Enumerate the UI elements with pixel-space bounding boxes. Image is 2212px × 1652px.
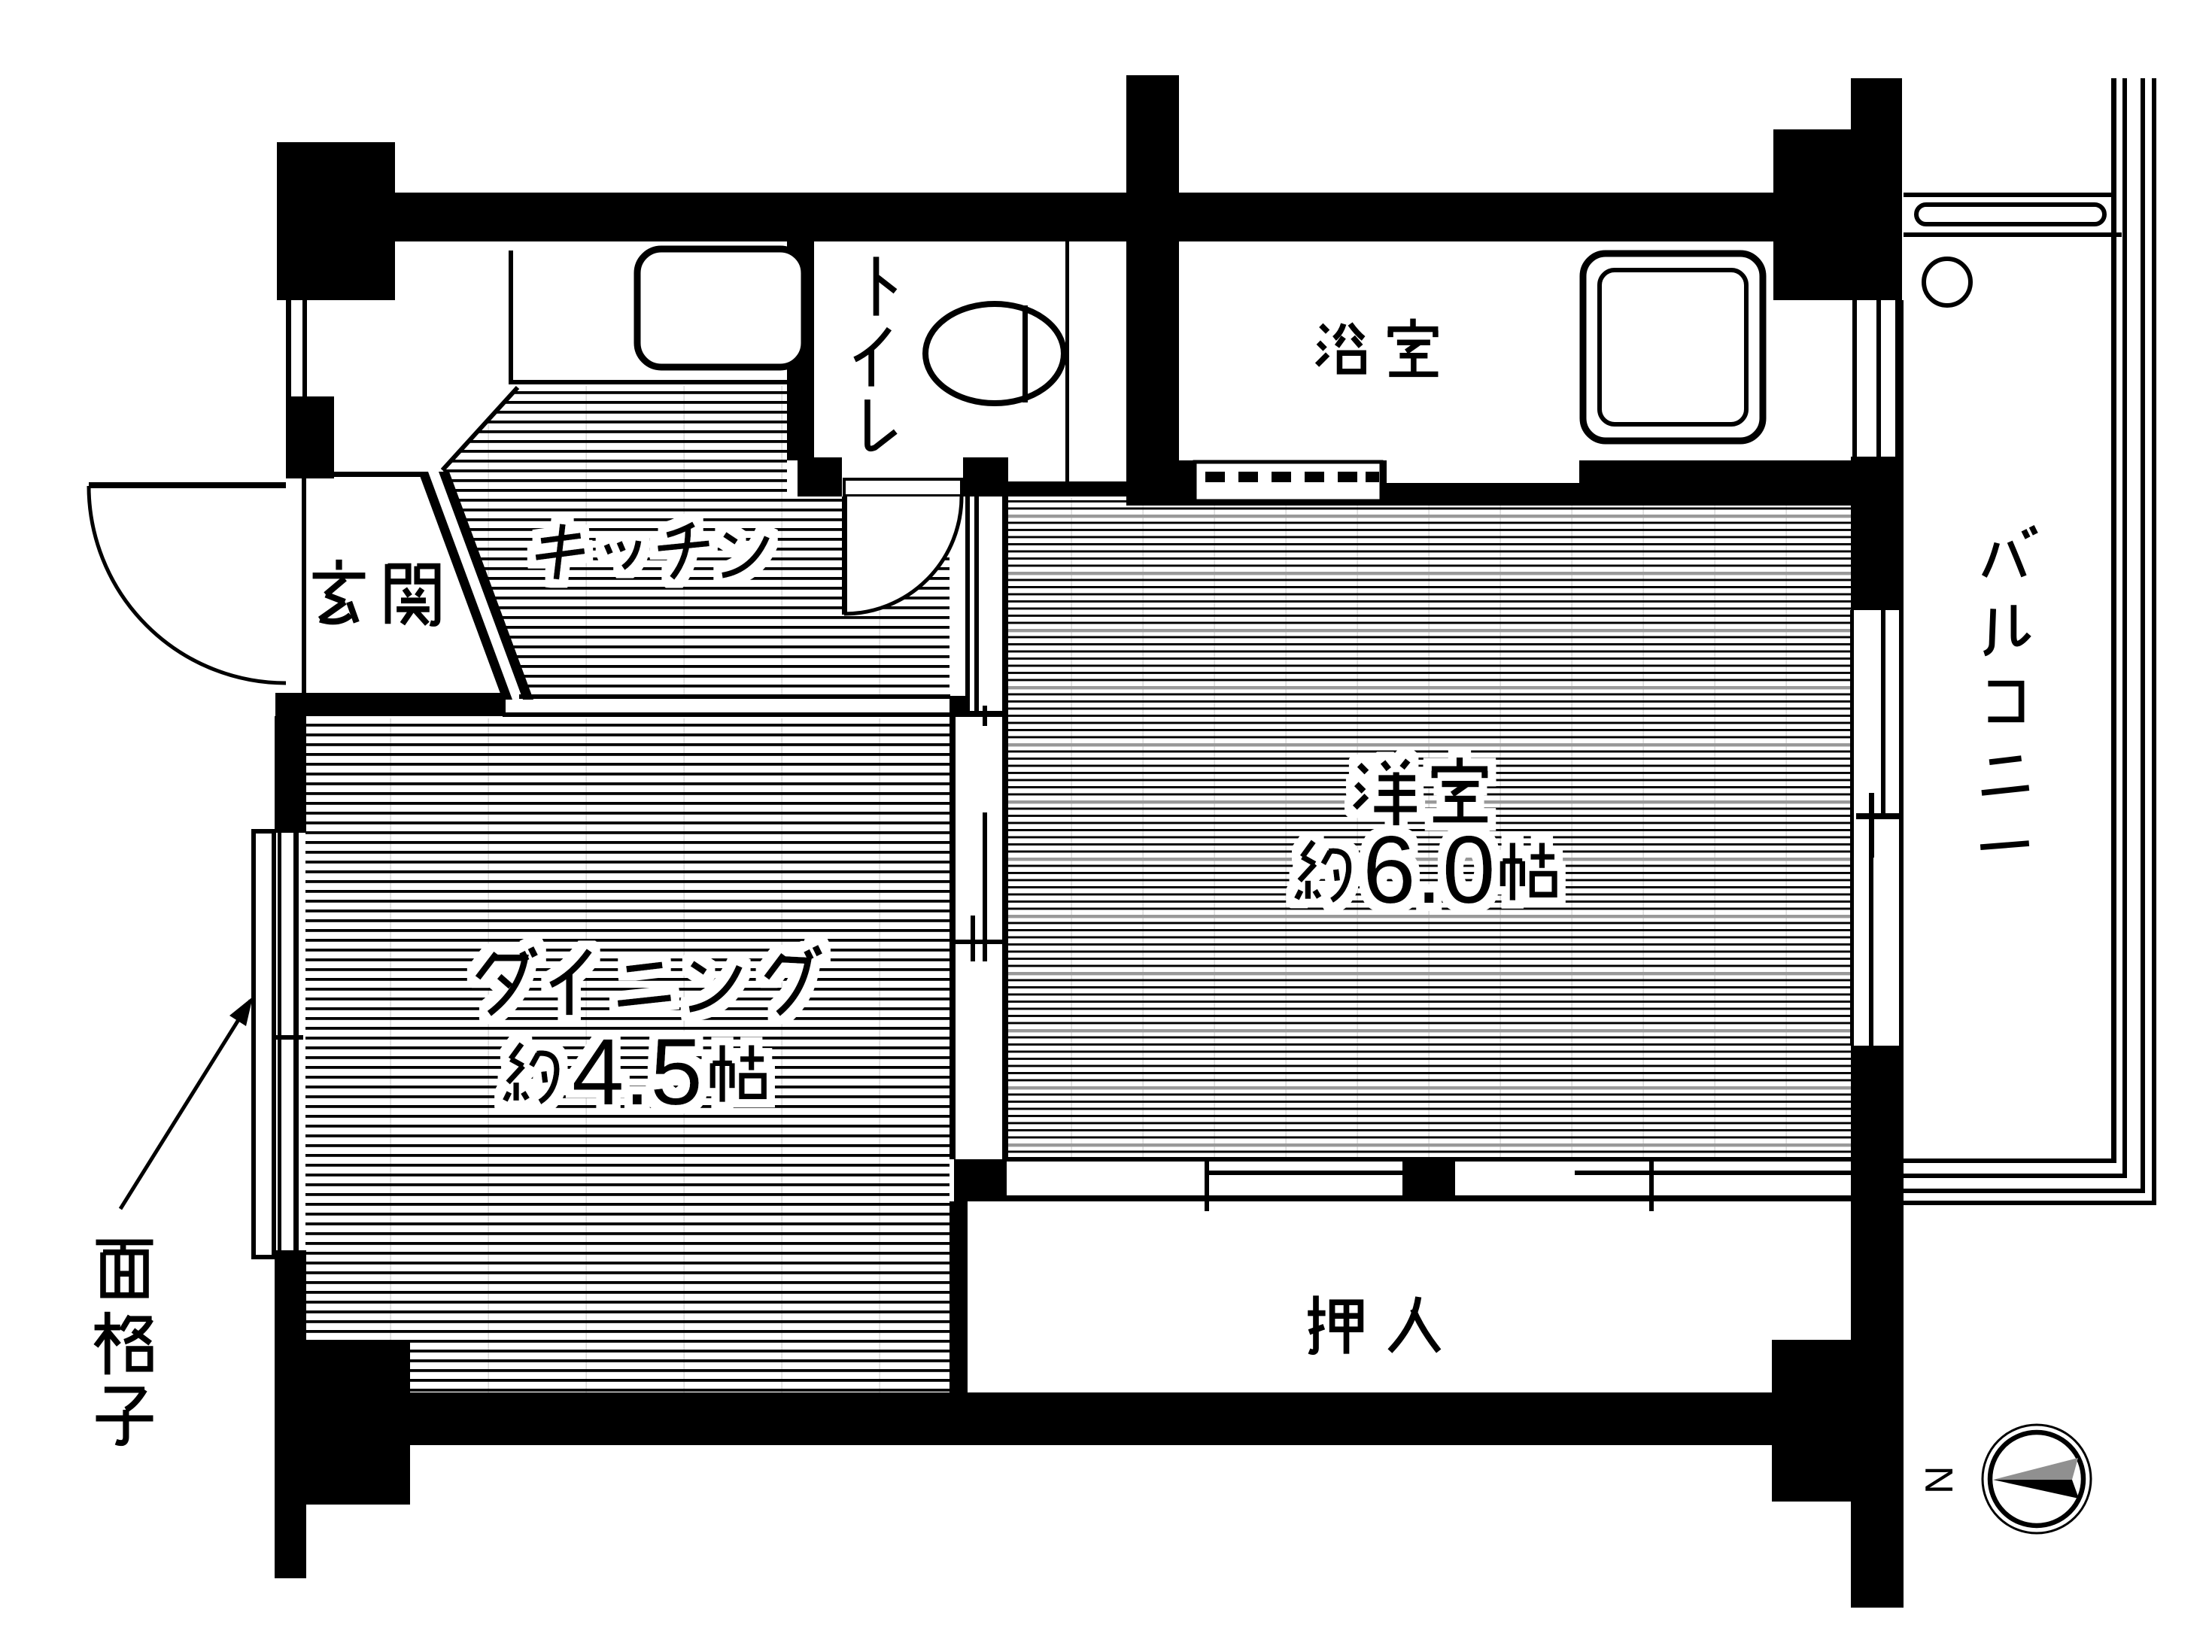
svg-text:6.0: 6.0 [1363,816,1496,923]
svg-text:4.5: 4.5 [572,1020,703,1125]
svg-text:N: N [1918,1465,1961,1494]
